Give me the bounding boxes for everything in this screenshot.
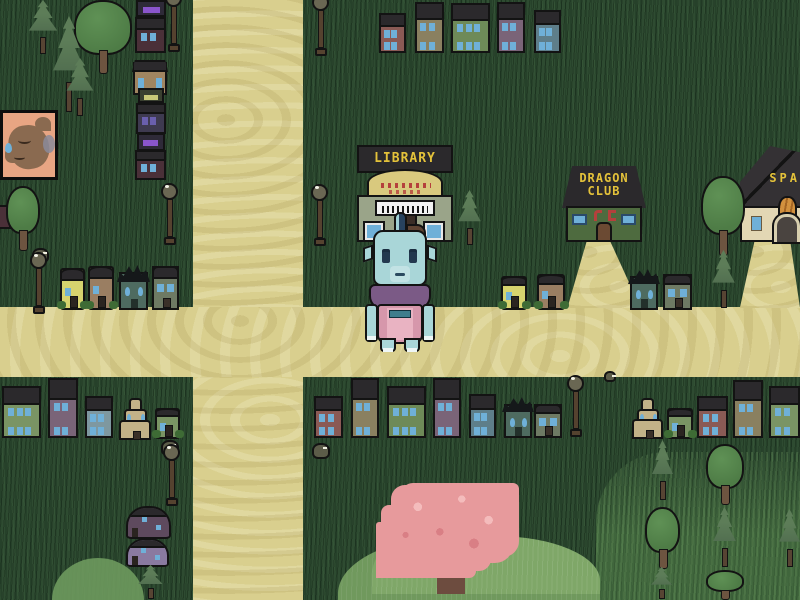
house-roof [117,265,150,282]
house-window [54,403,60,411]
round-canopy [6,186,40,234]
lamp-globe [30,252,47,269]
house[interactable] [504,404,532,438]
house-window [25,427,31,435]
dragon-club-red-glyph-2 [608,210,616,221]
house[interactable] [769,386,800,438]
pine-tree [710,250,737,310]
light-grass-patch [596,452,800,600]
house-roof [769,386,800,405]
house-window [712,414,718,422]
house[interactable] [135,150,166,180]
house-roof [537,274,565,285]
bush [522,301,531,309]
house[interactable] [314,396,343,438]
house-door[interactable] [641,299,648,308]
lamp-post [311,0,331,60]
house-window [98,414,104,422]
lamp-base [164,237,176,245]
house-roof [451,3,490,21]
lamp-pole [169,460,175,498]
lamp-post [310,184,330,250]
house[interactable] [136,0,166,17]
house-window [65,288,71,296]
house-roof [697,396,728,411]
house-roof [497,2,525,20]
house-window [364,427,370,435]
house[interactable] [379,13,406,53]
house-window [150,33,156,41]
house-window [156,525,161,530]
house[interactable] [126,538,169,567]
house-roof [469,394,496,410]
house[interactable] [415,2,444,53]
lamp-base [314,238,326,246]
player-character[interactable] [362,212,438,352]
pine-tree [650,440,675,502]
house-window [466,42,472,50]
pine-tree [711,507,738,569]
house-window [474,413,480,421]
house-window [167,284,174,292]
house-window [143,140,158,146]
house-window [410,427,416,435]
round-trunk [19,230,28,251]
house[interactable] [497,2,525,53]
rock-glint [612,375,616,377]
dragon-club-window-left [572,214,587,225]
house-window [364,403,370,411]
pine-trunk [659,589,665,599]
house-window [410,408,416,416]
spa-building[interactable]: SPA [740,146,800,242]
library-sign: LIBRARY [359,147,451,166]
house-window [446,403,452,411]
house-door[interactable] [98,296,106,308]
house-window [384,42,390,50]
dragon-club-door[interactable] [596,222,612,242]
house-roof [415,2,444,20]
house[interactable] [387,386,426,438]
round-tree [706,444,744,506]
round-trunk [721,590,730,600]
round-tree [706,570,744,600]
house-window [739,427,745,435]
pine-trunk [40,37,46,54]
character-eye-left [382,252,390,263]
bush [534,301,543,309]
house[interactable] [85,396,113,438]
house-window [150,117,156,125]
house-door[interactable] [132,528,138,537]
house-door[interactable] [133,431,141,440]
house[interactable] [2,386,41,438]
lamp-base [315,48,327,56]
house-window [502,42,508,50]
pine-trunk [467,228,473,245]
library-arch-glyphs [381,183,431,188]
house[interactable] [126,506,171,539]
house-door[interactable] [545,426,553,436]
bush [152,430,161,438]
house-window [90,427,96,435]
portrait-tear [5,143,12,153]
house[interactable] [697,396,728,438]
house-roof [314,396,343,411]
house[interactable] [630,276,658,310]
house[interactable] [138,88,164,103]
house[interactable] [733,380,763,438]
spa-window [751,216,762,231]
library-arch-window [367,169,443,197]
lamp-base [168,44,180,52]
house-roof [433,378,461,400]
rock-glint [323,447,327,449]
lamp-glint [165,185,169,188]
house-window [539,418,546,426]
character-belt [389,310,411,318]
character-frown [395,273,405,276]
lamp-globe [567,375,584,392]
house-window [429,42,435,50]
house-roof [387,386,426,405]
game-world[interactable]: LIBRARY DRAGON CLUB SPA [0,0,800,600]
pine-tree [136,565,165,600]
road-spa-branch[interactable] [736,238,800,308]
house-tier[interactable] [632,419,663,439]
house[interactable] [534,404,562,438]
round-tree [645,507,680,571]
lamp-base [570,429,582,437]
dragon-club-sign-line2: CLUB [562,185,646,198]
bush [688,430,697,438]
bush [175,430,184,438]
house-window [328,414,334,422]
dragon-club-building[interactable]: DRAGON CLUB [558,166,650,242]
house-window [150,164,156,172]
house[interactable] [135,17,166,53]
bush [109,301,118,309]
character-ear-frill-left [363,244,373,262]
house-window [550,418,557,426]
cherry-tree-canopy [391,485,513,563]
pine-trunk [721,290,727,308]
house-window [420,42,426,50]
house-window [138,287,143,296]
round-trunk [99,50,108,74]
house-door[interactable] [677,425,685,437]
lamp-pole [318,10,324,48]
house-window [510,418,515,427]
house-window [90,414,96,422]
house-roof [733,380,763,401]
house-door[interactable] [515,427,522,436]
character-claws-left [367,336,376,340]
dragon-club-red-glyph-1 [594,210,602,221]
house-roof [155,408,180,417]
round-canopy [645,507,680,553]
house-window [157,284,164,292]
lamp-pole [167,199,173,237]
lamp-pole [317,200,323,238]
character-ear-frill-right [427,244,437,262]
house-roof [379,13,406,27]
house-window [474,427,480,435]
portrait-ear [35,117,51,131]
house-window [125,287,130,296]
lamp-pole [171,6,177,44]
house[interactable] [534,10,561,53]
house-window [98,427,104,435]
house-window [25,408,31,416]
spa-sign: SPA [769,172,800,185]
house-roof [60,268,85,281]
house-door[interactable] [131,299,138,308]
pine-trunk [660,481,666,500]
house-window [93,286,99,294]
house[interactable] [469,394,496,438]
house-window [481,413,487,421]
house-window [747,404,753,412]
house-window [481,427,487,435]
house-window [510,42,516,50]
house-window [328,427,334,435]
house-window [420,23,426,31]
rock [604,371,616,382]
house-roof [136,103,166,114]
house-window [539,42,545,50]
lamp-globe [161,183,178,200]
lamp-glint [571,377,575,380]
house-window [17,427,23,435]
house-window [319,427,325,435]
pine-trunk [787,549,793,567]
portrait-closed-eye [18,137,31,144]
bush [664,430,673,438]
house-window [356,427,362,435]
house-window [703,427,709,435]
house-window [457,42,463,50]
house-window [712,427,718,435]
house-door[interactable] [163,298,171,308]
house-window [668,289,675,297]
house-window [391,30,397,38]
lamp-post [29,252,49,318]
character-toes-left [383,348,393,352]
house-window [8,408,14,416]
house-window [546,42,552,50]
house-door[interactable] [165,425,173,437]
house[interactable] [119,272,148,310]
house-window [393,408,399,416]
house-roof [534,10,561,25]
house[interactable] [152,266,179,310]
house-tier[interactable] [119,420,151,440]
round-canopy [706,570,744,592]
house-window [474,42,480,50]
house-window [775,427,781,435]
dragon-club-roof: DRAGON CLUB [562,166,646,208]
house-window [156,78,162,88]
lamp-glint [315,186,319,189]
house-roof [88,266,114,279]
house-window [522,418,527,427]
house-window [747,427,753,435]
house-window [143,7,160,13]
house-door[interactable] [511,296,519,308]
house-window [319,414,325,422]
round-canopy [701,176,745,235]
lamp-post [162,444,182,510]
house-window [391,42,397,50]
house-window [438,427,444,435]
bush [498,301,507,309]
house-roof [135,17,166,30]
lamp-post [566,375,586,441]
bush [57,301,66,309]
bush [560,301,569,309]
house-roof [663,274,692,285]
pine-trunk [148,588,154,599]
house-roof [135,150,166,161]
lamp-glint [34,254,38,257]
lamp-base [166,498,178,506]
library-arch-glyphs-2 [389,190,423,194]
house[interactable] [136,103,166,134]
house-window [384,30,390,38]
house-roof [85,396,113,411]
house-roof [132,60,168,72]
house-window [141,164,147,172]
house-roof [351,378,379,400]
house-window [8,427,14,435]
house-roof [667,408,693,417]
lamp-post [160,183,180,249]
house[interactable] [137,133,165,151]
house-window [636,290,641,299]
house-window [62,403,68,411]
portrait-smile [14,155,25,160]
house-roof [534,404,562,414]
house-window [446,427,452,435]
house-window [703,414,709,422]
house-window [466,24,472,32]
portrait-billboard [0,110,58,180]
house[interactable] [663,274,692,310]
house-window [784,427,790,435]
character-toes-right [407,348,417,352]
house-window [144,95,158,100]
lamp-base [33,306,45,314]
house-window [142,117,148,125]
round-tree [6,186,40,252]
round-canopy [706,444,744,489]
house-window [474,24,480,32]
lamp-pole [573,391,579,429]
house-window [510,23,516,31]
bush [85,301,94,309]
round-trunk [721,485,730,505]
house-window [393,427,399,435]
pine-tree [456,190,483,248]
house-window [546,28,552,36]
house-window [141,33,147,41]
house-door[interactable] [646,430,654,439]
house-roof [628,269,660,284]
house-window [739,404,745,412]
house-window [457,24,463,32]
house-window [775,408,781,416]
pine-tree [64,58,96,118]
house-window [155,555,160,560]
house-roof [152,266,179,279]
house-window [648,290,653,299]
house-window [402,427,408,435]
house-window [138,78,144,88]
lamp-glint [167,446,171,449]
spa-arch-door[interactable] [774,214,800,242]
house[interactable] [48,378,78,438]
house-window [141,548,146,553]
dragon-club-sign-line1: DRAGON [562,166,646,185]
house-door[interactable] [132,556,138,565]
lamp-globe [163,444,180,461]
lamp-pole [36,268,42,306]
house-window [429,23,435,31]
house-roof [126,538,169,548]
house-window [62,427,68,435]
house-window [54,427,60,435]
house-door[interactable] [70,296,78,308]
house-window [17,408,23,416]
rock [312,443,330,459]
house-roof [2,386,41,405]
lamp-globe [311,184,328,201]
round-trunk [659,549,668,569]
pine-trunk [77,98,83,116]
house[interactable] [351,378,379,438]
house-window [502,23,508,31]
portrait-gray-patch [43,135,55,153]
round-tree [701,176,745,258]
road-vertical[interactable] [193,0,303,600]
house-roof [501,276,527,286]
pine-trunk [722,548,728,567]
house-window [784,408,790,416]
house-window [680,289,687,297]
house-door[interactable] [548,296,556,308]
house-window [539,28,545,36]
lamp-post [164,0,184,56]
house-door[interactable] [675,298,683,308]
character-eye-right [409,252,417,263]
house-roof [502,397,534,412]
dragon-club-window-right [621,214,636,225]
house-roof [48,378,78,400]
character-claws-right [424,336,433,340]
house[interactable] [451,3,490,53]
house-window [142,517,147,522]
house[interactable] [433,378,461,438]
pine-tree [777,509,800,569]
house-window [402,408,408,416]
house-window [438,403,444,411]
house-window [356,403,362,411]
pine-tree [649,567,674,600]
